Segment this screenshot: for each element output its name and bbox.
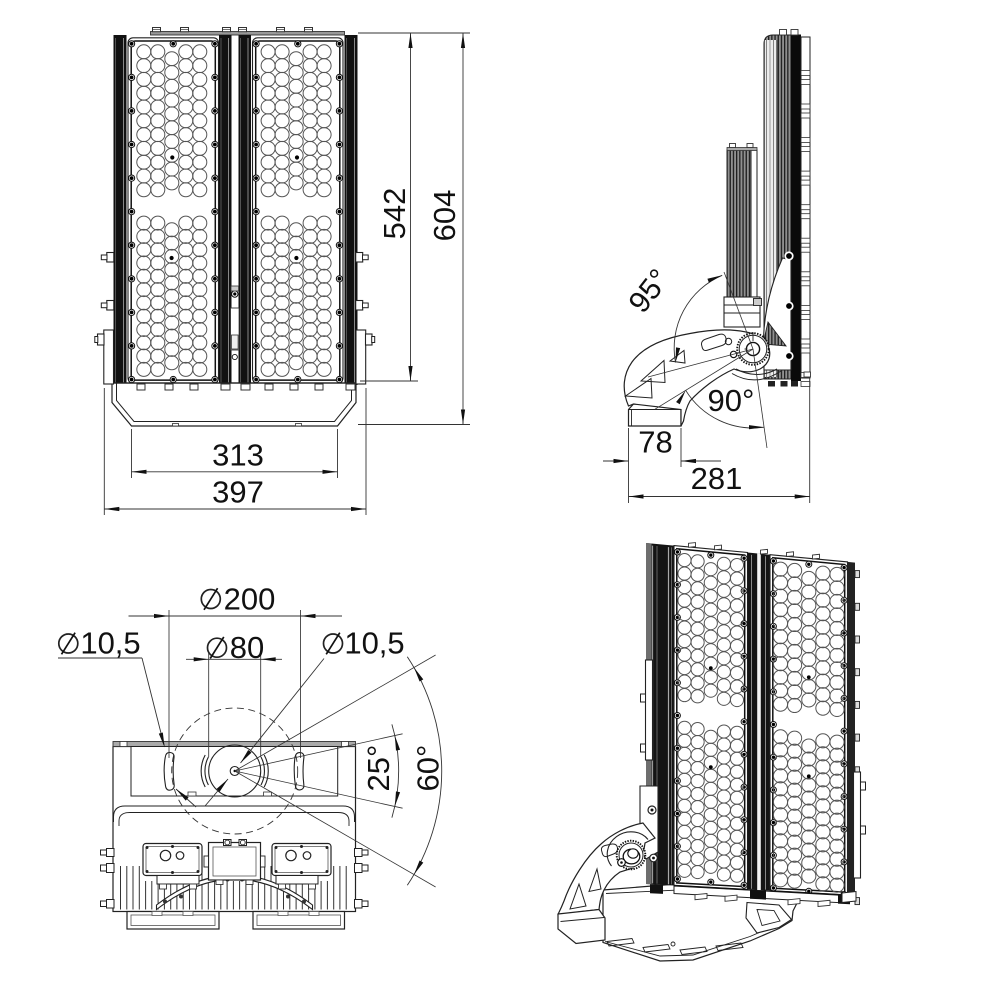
svg-text:60°: 60° bbox=[411, 745, 446, 792]
svg-text:281: 281 bbox=[691, 461, 743, 496]
svg-text:90°: 90° bbox=[708, 383, 755, 418]
svg-text:604: 604 bbox=[427, 190, 462, 242]
svg-text:542: 542 bbox=[377, 188, 412, 240]
svg-text:25°: 25° bbox=[361, 745, 396, 792]
svg-text:313: 313 bbox=[212, 438, 264, 473]
svg-text:200: 200 bbox=[224, 582, 276, 617]
svg-text:78: 78 bbox=[638, 425, 672, 460]
svg-text:10,5: 10,5 bbox=[80, 626, 140, 661]
svg-text:397: 397 bbox=[212, 475, 264, 510]
svg-text:80: 80 bbox=[230, 630, 264, 665]
svg-text:10,5: 10,5 bbox=[344, 626, 404, 661]
